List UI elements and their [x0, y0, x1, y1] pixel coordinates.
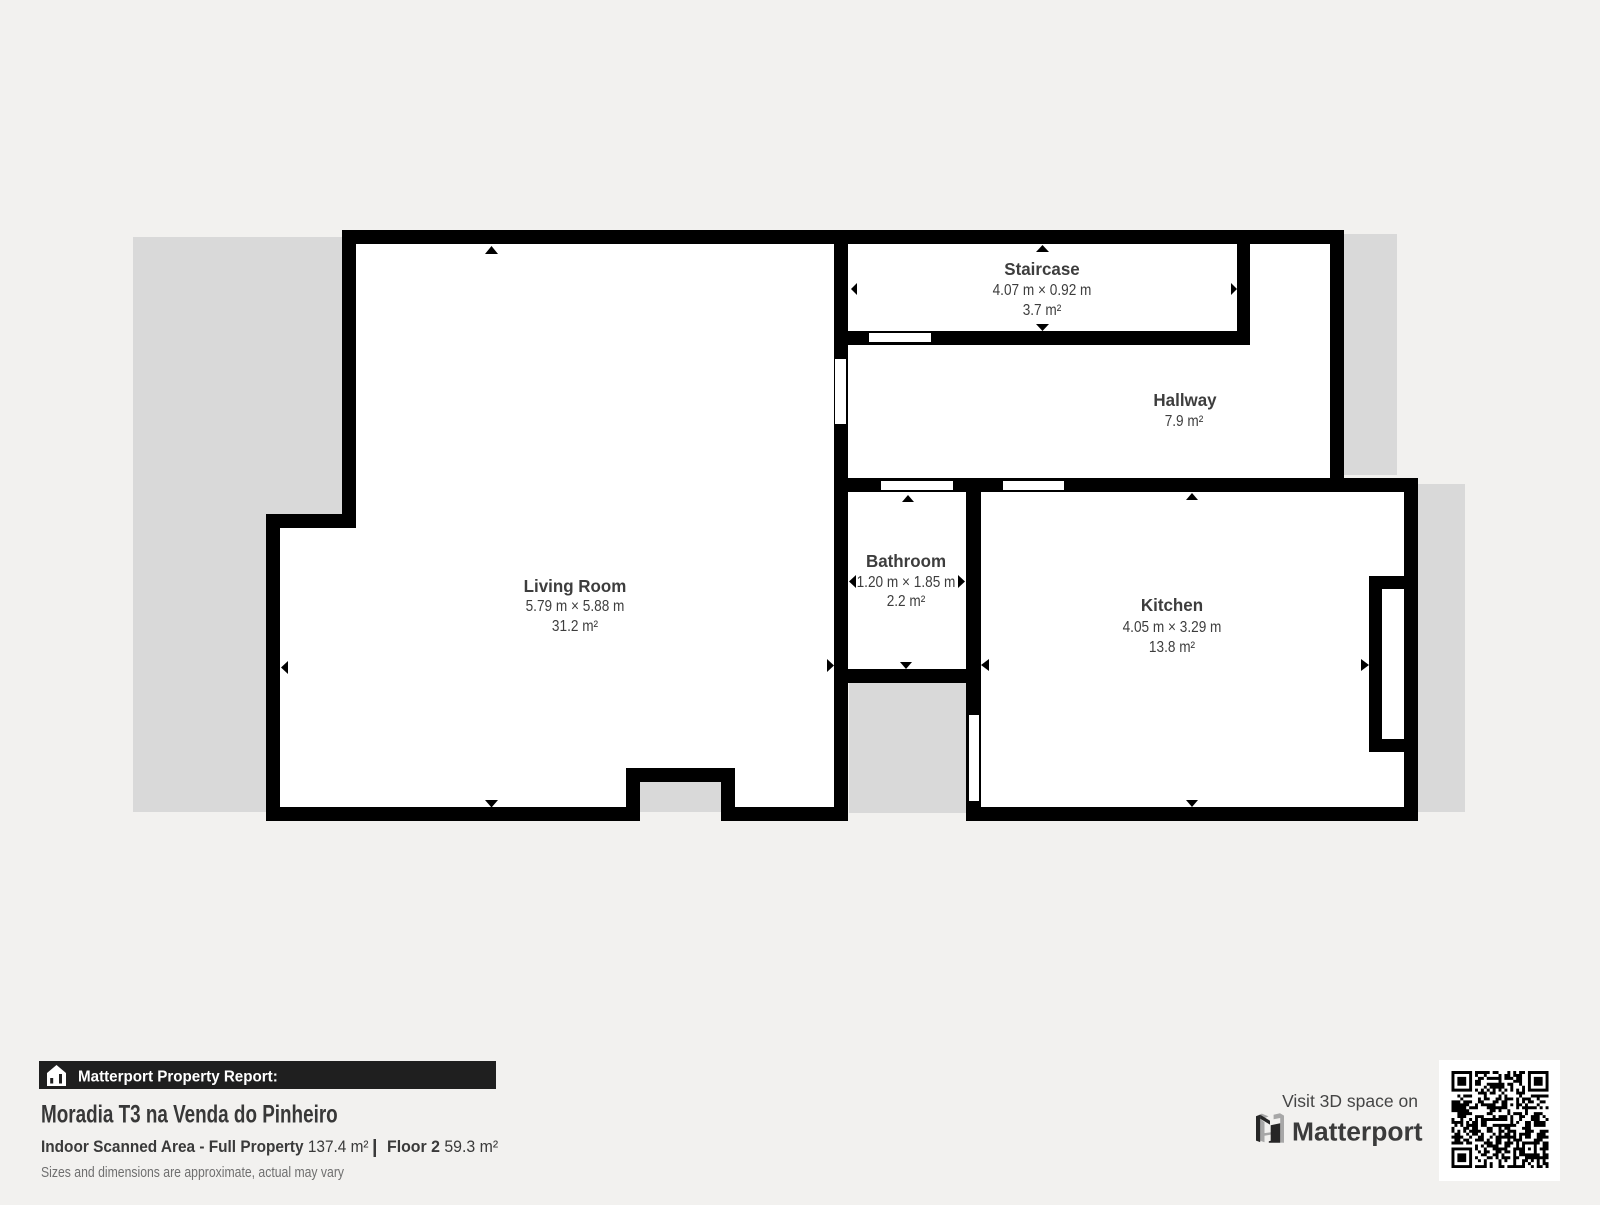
- svg-text:Staircase: Staircase: [1004, 259, 1079, 279]
- svg-text:Kitchen: Kitchen: [1141, 595, 1203, 615]
- svg-text:5.79 m × 5.88 m: 5.79 m × 5.88 m: [526, 598, 625, 615]
- svg-text:Moradia T3 na Venda do Pinheir: Moradia T3 na Venda do Pinheiro: [41, 1100, 338, 1128]
- svg-text:4.05 m × 3.29 m: 4.05 m × 3.29 m: [1123, 619, 1222, 636]
- svg-text:Bathroom: Bathroom: [866, 551, 946, 571]
- svg-text:Matterport: Matterport: [1292, 1117, 1423, 1147]
- svg-text:Hallway: Hallway: [1153, 390, 1217, 410]
- svg-text:Matterport Property Report:: Matterport Property Report:: [78, 1068, 278, 1085]
- svg-text:3.7 m²: 3.7 m²: [1023, 302, 1062, 319]
- svg-text:13.8 m²: 13.8 m²: [1149, 639, 1195, 656]
- svg-text:Visit 3D space on: Visit 3D space on: [1282, 1091, 1418, 1111]
- svg-text:Floor 2 59.3 m²: Floor 2 59.3 m²: [387, 1138, 499, 1156]
- svg-text:Living Room: Living Room: [524, 576, 627, 596]
- svg-text:31.2 m²: 31.2 m²: [552, 618, 598, 635]
- svg-text:Indoor Scanned Area - Full Pro: Indoor Scanned Area - Full Property 137.…: [41, 1139, 369, 1157]
- svg-text:2.2 m²: 2.2 m²: [887, 593, 926, 610]
- svg-text:4.07 m × 0.92 m: 4.07 m × 0.92 m: [993, 282, 1092, 299]
- svg-text:1.20 m × 1.85 m: 1.20 m × 1.85 m: [857, 574, 956, 591]
- svg-text:7.9 m²: 7.9 m²: [1165, 413, 1204, 430]
- svg-text:Sizes and dimensions are appro: Sizes and dimensions are approximate, ac…: [41, 1164, 344, 1180]
